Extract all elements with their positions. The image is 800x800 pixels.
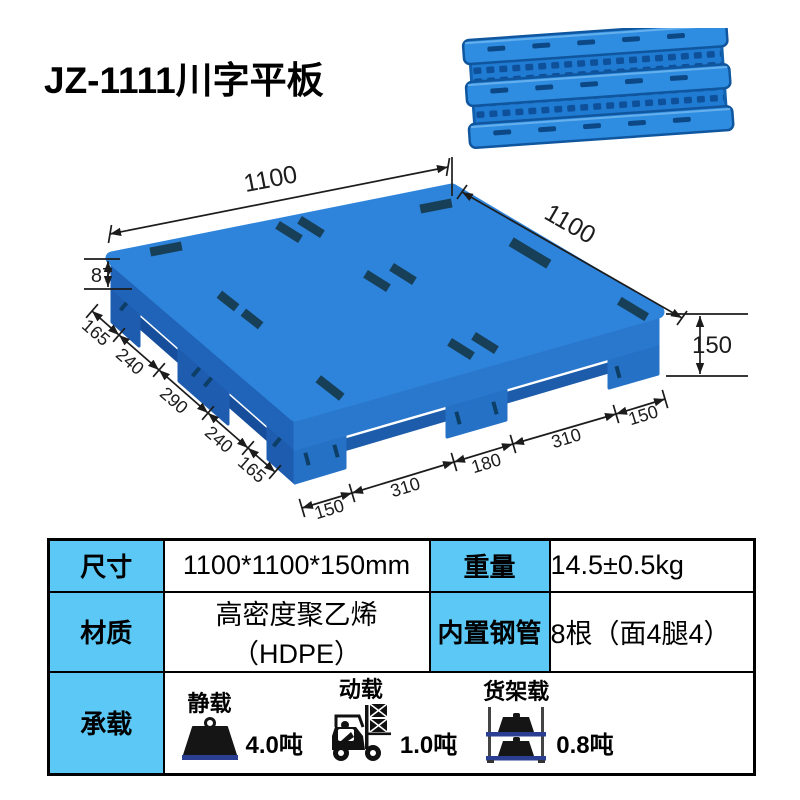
dim-label-front-seg-0: 150 <box>312 495 347 523</box>
dim-label-height: 150 <box>692 332 732 359</box>
dim-label-left-seg-4: 165 <box>234 452 270 487</box>
table-row: 材质 高密度聚乙烯（HDPE） 内置钢管 8根（面4腿4） <box>49 592 755 672</box>
dim-label-left-seg-3: 240 <box>201 422 237 457</box>
spec-header-load: 承载 <box>49 672 164 775</box>
rack-icon <box>486 705 546 763</box>
static-load-label: 静载 <box>187 691 231 716</box>
dim-label-left-seg-1: 240 <box>112 344 148 379</box>
spec-value-size: 1100*1100*150mm <box>164 540 430 592</box>
spec-value-steel-tubes: 8根（面4腿4） <box>550 592 755 672</box>
forklift-icon <box>329 703 393 763</box>
load-capacity-cell: 静载 4.0吨 动载 <box>164 672 755 775</box>
dim-label-deck-thickness: 87 <box>91 265 113 287</box>
rack-load-label: 货架载 <box>483 679 549 704</box>
spec-value-weight: 14.5±0.5kg <box>550 540 755 592</box>
static-load-group: 静载 4.0吨 <box>181 691 303 763</box>
table-row: 承载 静载 4.0吨 <box>49 672 755 775</box>
dynamic-load-label: 动载 <box>339 677 383 702</box>
spec-header-weight: 重量 <box>430 540 550 592</box>
static-load-value: 4.0吨 <box>246 725 303 763</box>
table-row: 尺寸 1100*1100*150mm 重量 14.5±0.5kg <box>49 540 755 592</box>
spec-header-steel-tubes: 内置钢管 <box>430 592 550 672</box>
rack-load-value: 0.8吨 <box>556 725 613 763</box>
product-spec-sheet: JZ-1111川字平板 <box>0 0 800 800</box>
dim-label-front-seg-2: 180 <box>469 449 504 477</box>
dim-label-left-seg-0: 165 <box>78 315 114 350</box>
spec-table: 尺寸 1100*1100*150mm 重量 14.5±0.5kg 材质 高密度聚… <box>47 538 756 776</box>
rack-load-group: 货架载 <box>483 679 613 763</box>
dynamic-load-group: 动载 <box>329 677 457 763</box>
dynamic-load-value: 1.0吨 <box>400 725 457 763</box>
dim-label-front-seg-3: 310 <box>549 424 584 452</box>
pallet-dimension-drawing: 1100 1100 87 150 165 240 290 240 165 150… <box>0 0 800 535</box>
dim-label-top-length: 1100 <box>241 160 299 198</box>
dim-label-front-seg-4: 150 <box>626 401 661 429</box>
spec-header-size: 尺寸 <box>49 540 164 592</box>
spec-header-material: 材质 <box>49 592 164 672</box>
spec-value-material: 高密度聚乙烯（HDPE） <box>164 592 430 672</box>
weight-icon <box>181 717 239 763</box>
dim-label-front-seg-1: 310 <box>388 473 423 501</box>
